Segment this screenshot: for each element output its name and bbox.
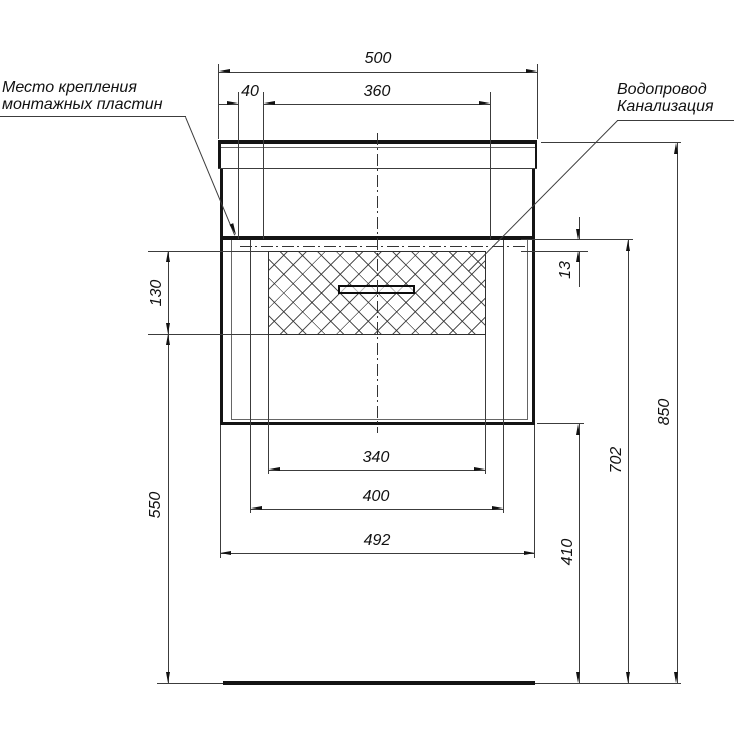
arrowhead xyxy=(674,143,678,154)
dim-360-label: 360 xyxy=(347,83,407,101)
arrowhead xyxy=(166,251,170,262)
extension-line-500-right xyxy=(537,64,538,139)
dimension-line-550 xyxy=(168,334,169,683)
arrowhead xyxy=(264,101,275,105)
countertop-inner-edge xyxy=(220,147,535,148)
technical-drawing-vanity-front-view: 500 40 360 340 400 492 130 550 13 410 70… xyxy=(0,0,736,736)
arrowhead xyxy=(166,672,170,683)
arrowhead xyxy=(576,251,580,262)
arrowhead xyxy=(227,101,238,105)
arrowhead xyxy=(576,672,580,683)
extension-line-40-left xyxy=(238,92,239,239)
drawer-box-left-line xyxy=(250,240,251,513)
countertop-left-edge xyxy=(218,140,221,169)
dim-130-label: 130 xyxy=(148,263,166,323)
extension-line-360-right xyxy=(490,92,491,239)
arrowhead xyxy=(674,672,678,683)
arrowhead xyxy=(166,334,170,345)
arrowhead xyxy=(479,101,490,105)
mounting-plates-label-line2: монтажных пластин xyxy=(2,96,163,113)
dimension-line-410 xyxy=(579,424,580,683)
utilities-label-line1: Водопровод xyxy=(617,81,714,98)
arrowhead xyxy=(626,672,630,683)
dimension-line-400 xyxy=(251,509,504,510)
utilities-underline xyxy=(617,120,734,121)
arrowhead xyxy=(269,467,280,471)
arrowhead xyxy=(219,69,230,73)
arrowhead xyxy=(576,229,580,240)
mounting-plates-underline xyxy=(0,116,186,117)
center-axis-line xyxy=(377,133,378,433)
arrowhead xyxy=(251,506,262,510)
arrowhead xyxy=(166,323,170,334)
dimension-line-702 xyxy=(628,240,629,683)
dimension-line-130 xyxy=(168,251,169,334)
dim-702-label: 702 xyxy=(608,430,626,490)
dim-410-label: 410 xyxy=(559,522,577,582)
dimension-line-360 xyxy=(264,104,491,105)
dimension-line-492 xyxy=(220,553,535,554)
extension-line-492-left xyxy=(220,425,221,558)
arrowhead xyxy=(220,551,231,555)
countertop-right-edge xyxy=(535,140,538,169)
floor-line-thick xyxy=(223,681,535,685)
arrowhead xyxy=(526,69,537,73)
dimension-line-500 xyxy=(219,72,537,73)
cabinet-inner-left-wall xyxy=(231,240,232,420)
dimension-line-340 xyxy=(269,470,485,471)
dim-500-label: 500 xyxy=(348,50,408,68)
dim-550-label: 550 xyxy=(147,475,165,535)
utilities-label: Водопровод Канализация xyxy=(617,81,714,115)
mounting-plates-leader-line xyxy=(185,117,235,236)
extension-line-850-top xyxy=(541,142,681,143)
arrowhead xyxy=(492,506,503,510)
extension-line-40-right xyxy=(263,92,264,239)
dim-40-label: 40 xyxy=(235,83,265,101)
dim-13-label: 13 xyxy=(557,240,575,300)
utilities-label-line2: Канализация xyxy=(617,98,714,115)
drawer-box-right-line xyxy=(503,240,504,513)
dim-400-label: 400 xyxy=(346,488,406,506)
dimension-line-850 xyxy=(677,143,678,684)
mounting-axis-line xyxy=(240,246,525,247)
extension-line-500-left xyxy=(218,64,219,139)
mounting-plates-label-line1: Место крепления xyxy=(2,79,163,96)
arrowhead xyxy=(524,551,535,555)
cabinet-inner-right-wall xyxy=(527,240,528,420)
arrowhead xyxy=(626,240,630,251)
dim-340-label: 340 xyxy=(346,449,406,467)
mounting-plates-leader-arrowhead xyxy=(229,223,237,236)
arrowhead xyxy=(474,467,485,471)
dim-492-label: 492 xyxy=(347,532,407,550)
extension-line-492-right xyxy=(534,425,535,558)
mounting-plates-label: Место крепления монтажных пластин xyxy=(2,79,163,113)
arrowhead xyxy=(576,424,580,435)
cabinet-inner-bottom-line xyxy=(231,419,527,420)
dim-850-label: 850 xyxy=(656,382,674,442)
